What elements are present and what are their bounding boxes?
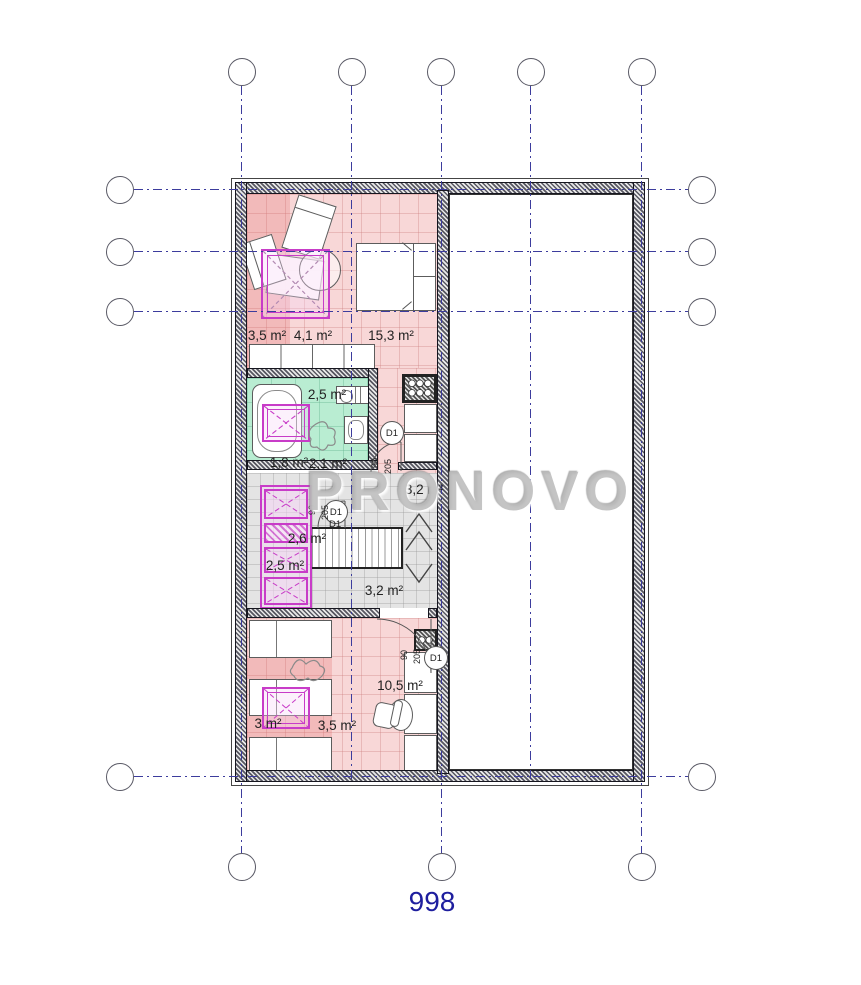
- grid-bubble: [106, 238, 134, 266]
- grid-line-horizontal: [134, 251, 688, 252]
- area-label: 1,8 m²: [270, 455, 308, 470]
- grid-bubble: [106, 176, 134, 204]
- sheet-number: 998: [409, 886, 456, 918]
- grid-line-horizontal: [134, 311, 688, 312]
- exterior-wall-right: [633, 182, 645, 782]
- grid-line-vertical: [241, 86, 242, 853]
- area-label: 3 m²: [255, 716, 282, 731]
- grid-bubble: [427, 58, 455, 86]
- watermark: PRONOVO: [306, 458, 634, 523]
- grid-line-vertical: [351, 86, 352, 783]
- bedroom-wall-top: [247, 608, 380, 618]
- area-label: 15,3 m²: [368, 328, 414, 343]
- bedroom-wall-stub: [428, 608, 437, 618]
- grid-bubble: [688, 763, 716, 791]
- grid-line-vertical: [530, 86, 531, 783]
- grid-line-horizontal: [134, 189, 688, 190]
- grid-line-horizontal: [134, 776, 688, 777]
- floor-plan-canvas: 3,5 m² 4,1 m² 15,3 m² 2,5 m² 1,8 m² 2,1 …: [0, 0, 861, 985]
- area-label: 10,5 m²: [377, 678, 423, 693]
- door-tag: D1: [424, 646, 448, 670]
- bathroom-wall-top: [247, 368, 378, 378]
- bathroom-wall-right: [368, 368, 378, 470]
- area-label: 2,5 m²: [308, 387, 346, 402]
- area-label: 2,6 m²: [288, 531, 326, 546]
- grid-bubble: [106, 763, 134, 791]
- area-label: 3,5 m²: [248, 328, 286, 343]
- grid-bubble: [688, 298, 716, 326]
- grid-bubble: [688, 238, 716, 266]
- grid-bubble: [628, 58, 656, 86]
- grid-bubble: [228, 853, 256, 881]
- grid-bubble: [688, 176, 716, 204]
- grid-bubble: [628, 853, 656, 881]
- grid-line-vertical: [641, 86, 642, 853]
- door-height-dim: 205: [412, 649, 422, 664]
- area-label: 4,1 m²: [294, 328, 332, 343]
- grid-bubble: [106, 298, 134, 326]
- area-label: 3,5 m²: [318, 718, 356, 733]
- grid-bubble: [428, 853, 456, 881]
- grid-bubble: [338, 58, 366, 86]
- door-tag: D1: [380, 421, 404, 445]
- area-label: 2,5 m²: [266, 558, 304, 573]
- area-label: 3,2 m²: [365, 583, 403, 598]
- grid-bubble: [228, 58, 256, 86]
- grid-bubble: [517, 58, 545, 86]
- door-width-dim: 90: [399, 650, 409, 660]
